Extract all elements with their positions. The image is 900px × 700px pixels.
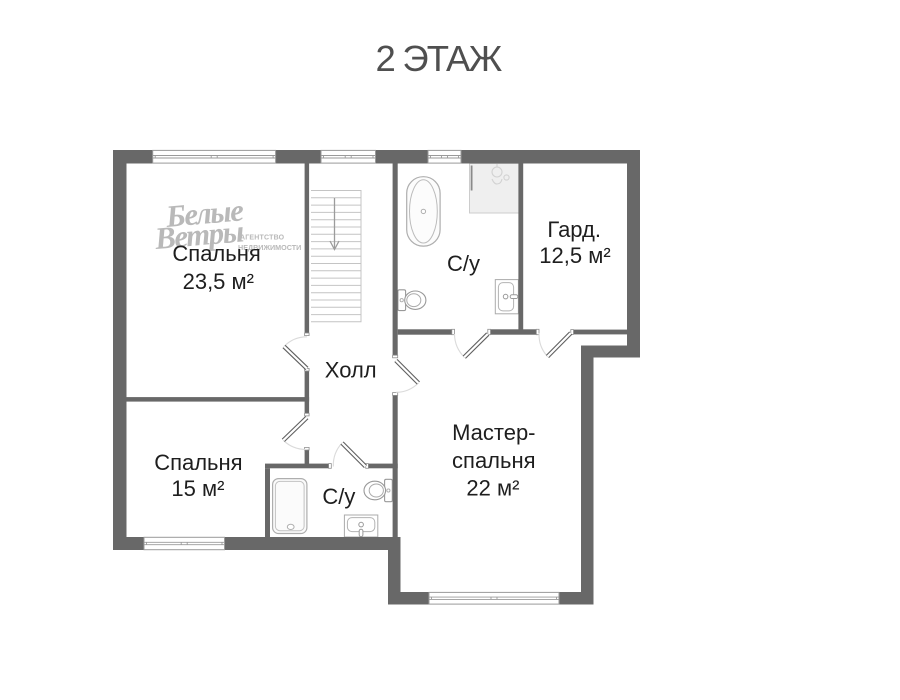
svg-text:Холл: Холл bbox=[325, 358, 377, 383]
svg-text:15 м²: 15 м² bbox=[171, 476, 224, 501]
svg-text:23,5 м²: 23,5 м² bbox=[183, 269, 254, 294]
svg-text:12,5 м²: 12,5 м² bbox=[539, 243, 610, 268]
svg-text:Спальня: Спальня bbox=[172, 241, 260, 266]
svg-text:Спальня: Спальня bbox=[154, 450, 242, 475]
svg-text:С/у: С/у bbox=[447, 251, 480, 276]
svg-text:Гард.: Гард. bbox=[547, 217, 601, 242]
svg-text:спальня: спальня bbox=[452, 448, 536, 473]
svg-text:22 м²: 22 м² bbox=[466, 476, 519, 501]
svg-text:2 ЭТАЖ: 2 ЭТАЖ bbox=[375, 38, 502, 79]
svg-text:С/у: С/у bbox=[322, 484, 355, 509]
svg-text:Мастер-: Мастер- bbox=[452, 420, 535, 445]
